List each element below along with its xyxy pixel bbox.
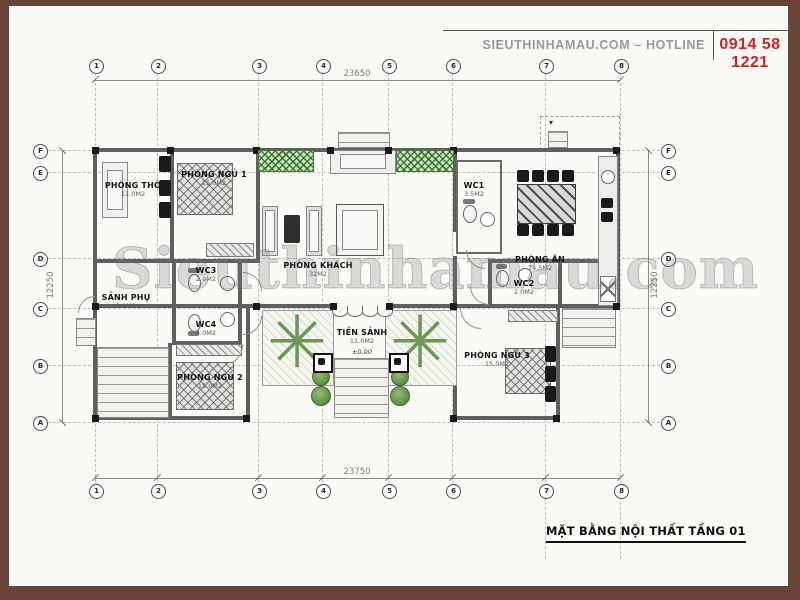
grid-bubble-col: 3: [252, 484, 267, 499]
rear-cabinet-inner: [340, 154, 386, 169]
room-area: 11.0M2: [337, 337, 388, 345]
drawing-title: MẶT BẰNG NỘI THẤT TẦNG 01: [546, 524, 746, 543]
column: [613, 147, 620, 154]
grid-bubble-col: 3: [252, 59, 267, 74]
room-label: PHÒNG THỜ 11.0M2: [105, 181, 161, 198]
dimension-line-top: [95, 80, 620, 81]
column: [613, 303, 620, 310]
room-label: WC2 2.0M2: [514, 279, 535, 296]
room-name: TIỀN SẢNH: [337, 328, 388, 337]
dining-chair: [547, 224, 559, 236]
room-label: PHÒNG NGỦ 2 15.0M2: [177, 373, 243, 390]
room-label: PHÒNG KHÁCH 32M2: [283, 261, 352, 278]
column: [450, 415, 457, 422]
room-name: WC3: [196, 266, 217, 275]
dining-chair: [562, 170, 574, 182]
room-name: WC4: [196, 320, 217, 329]
frame-bottom: [0, 586, 800, 600]
grid-bubble-col: 5: [382, 59, 397, 74]
frame-right: [788, 0, 800, 600]
room-label: WC1 3.5M2: [464, 181, 485, 198]
entrance-door-arc: [362, 306, 378, 317]
room-label: WC4 4.0M2: [196, 320, 217, 337]
room-label: TIỀN SẢNH 11.0M2: [337, 328, 388, 345]
toilet-tank: [463, 199, 475, 204]
grid-bubble-col: 8: [614, 59, 629, 74]
porch-column-core: [394, 358, 401, 365]
wardrobe: [176, 344, 242, 356]
hotline-phone-number: 0914 58 1221: [714, 36, 786, 72]
floor-plan-sheet: SIEUTHINHAMAU.COM – HOTLINE 0914 58 1221…: [0, 0, 800, 600]
room-label: PHÒNG NGỦ 3 15.0M2: [464, 351, 530, 368]
side-steps: [548, 131, 568, 148]
room-area: 15.0M2: [464, 360, 530, 368]
room-name: PHÒNG THỜ: [105, 181, 161, 190]
room-name: SẢNH PHỤ: [102, 293, 151, 302]
entrance-door-arc: [347, 306, 363, 317]
grid-bubble-row: B: [661, 359, 676, 374]
grid-bubble-col: 4: [316, 59, 331, 74]
dimension-top: 23650: [327, 69, 387, 79]
grid-bubble-row: C: [33, 302, 48, 317]
room-label: SẢNH PHỤ 9.0M2: [102, 293, 151, 310]
column: [385, 147, 392, 154]
side-steps: [562, 308, 616, 348]
grid-bubble-col: 2: [151, 484, 166, 499]
room-area: 24.5M2: [515, 264, 565, 272]
room-area: 2.0M2: [196, 275, 217, 283]
room-label: PHÒNG ĂN 24.5M2: [515, 255, 565, 272]
room-area: 4.0M2: [196, 329, 217, 337]
header-rule: [443, 30, 788, 31]
elevation-marker-icon: ▾: [549, 118, 553, 127]
room-name: PHÒNG NGỦ 2: [177, 373, 243, 382]
grid-bubble-col: 4: [316, 484, 331, 499]
side-steps: [76, 318, 96, 346]
grid-bubble-col: 7: [539, 484, 554, 499]
dimension-line-bottom: [95, 478, 620, 479]
grid-bubble-row: A: [661, 416, 676, 431]
grid-bubble-col: 1: [89, 59, 104, 74]
room-area: 3.5M2: [464, 190, 485, 198]
wardrobe-unit: [159, 202, 171, 218]
grid-bubble-row: E: [33, 166, 48, 181]
room-area: 32M2: [283, 270, 352, 278]
dining-chair: [562, 224, 574, 236]
room-area: 2.0M2: [514, 288, 535, 296]
dimension-left: 12250: [46, 267, 56, 303]
wardrobe-unit: [545, 386, 556, 402]
grid-bubble-col: 6: [446, 59, 461, 74]
door-arc: [460, 308, 481, 329]
column: [167, 147, 174, 154]
grid-bubble-col: 5: [382, 484, 397, 499]
room-name: PHÒNG NGỦ 1: [181, 170, 247, 179]
entry-level-annotation: ±0.00: [352, 348, 372, 356]
site-url-hotline-label: SIEUTHINHAMAU.COM – HOTLINE: [443, 38, 705, 52]
grid-line: [48, 422, 660, 423]
grid-bubble-col: 6: [446, 484, 461, 499]
grid-bubble-row: B: [33, 359, 48, 374]
column: [243, 415, 250, 422]
grid-bubble-row: F: [33, 144, 48, 159]
column: [553, 415, 560, 422]
grid-bubble-col: 2: [151, 59, 166, 74]
room-name: PHÒNG ĂN: [515, 255, 565, 264]
porch-column-core: [318, 358, 325, 365]
room-label: WC3 2.0M2: [196, 266, 217, 283]
stove: [601, 198, 613, 208]
frame-top: [0, 0, 800, 6]
grid-bubble-row: C: [661, 302, 676, 317]
grid-bubble-col: 8: [614, 484, 629, 499]
wardrobe-unit: [545, 346, 556, 362]
dining-table: [517, 184, 576, 224]
column: [327, 147, 334, 154]
dining-chair: [547, 170, 559, 182]
rear-steps: [338, 132, 390, 148]
dresser: [508, 310, 558, 322]
kitchen-sink: [601, 170, 615, 184]
dimension-line-left: [62, 150, 63, 422]
dining-chair: [517, 170, 529, 182]
grid-bubble-col: 1: [89, 484, 104, 499]
grid-bubble-row: F: [661, 144, 676, 159]
room-name: PHÒNG KHÁCH: [283, 261, 352, 270]
grid-bubble-row: E: [661, 166, 676, 181]
stove: [601, 212, 613, 222]
room-area: 9.0M2: [102, 302, 151, 310]
dining-chair: [517, 224, 529, 236]
dining-chair: [532, 170, 544, 182]
wall: [93, 148, 97, 308]
sink: [480, 212, 495, 227]
column: [92, 303, 99, 310]
wardrobe-unit: [159, 156, 171, 172]
room-area: 15.0M2: [181, 179, 247, 187]
wall: [453, 416, 560, 420]
dining-chair: [532, 224, 544, 236]
frame-left: [0, 0, 9, 600]
column: [92, 147, 99, 154]
dimension-bottom: 23750: [327, 467, 387, 477]
column: [92, 415, 99, 422]
grid-bubble-row: A: [33, 416, 48, 431]
shrub: [311, 386, 331, 406]
room-name: WC2: [514, 279, 535, 288]
room-label: PHÒNG NGỦ 1 15.0M2: [181, 170, 247, 187]
room-name: PHÒNG NGỦ 3: [464, 351, 530, 360]
toilet: [463, 205, 477, 223]
shrub: [390, 386, 410, 406]
room-area: 11.0M2: [105, 190, 161, 198]
wardrobe-unit: [545, 366, 556, 382]
staircase: [97, 347, 169, 418]
basin: [220, 312, 235, 327]
grid-bubble-col: 7: [539, 59, 554, 74]
planter-box: [396, 150, 454, 172]
room-name: WC1: [464, 181, 485, 190]
grid-bubble-row: D: [33, 252, 48, 267]
room-area: 15.0M2: [177, 382, 243, 390]
planter-box: [258, 150, 314, 172]
